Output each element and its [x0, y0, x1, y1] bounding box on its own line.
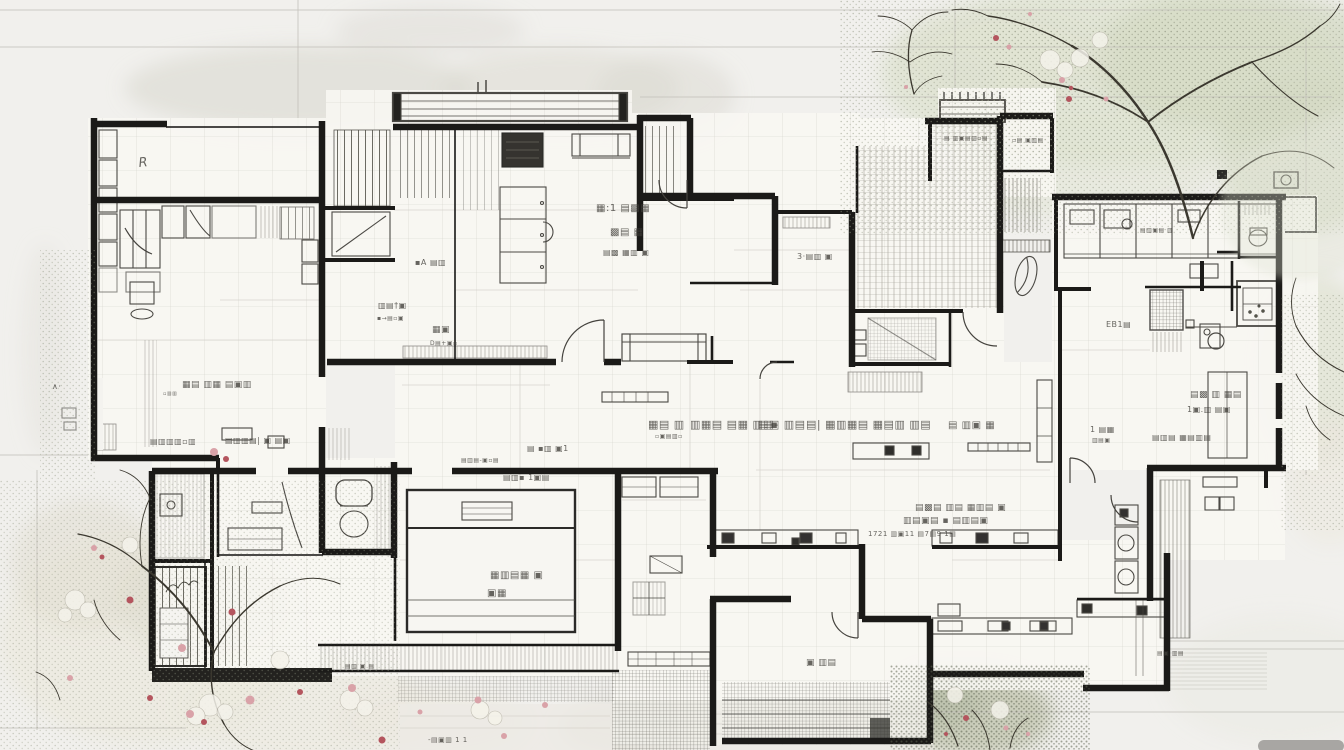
- annotation-text: ▫▤ ▣▥▤: [1012, 137, 1044, 144]
- annotation-text: ▤| ▦▥▦▤ ▦▤▥ ▥▤: [806, 418, 931, 431]
- annotation-text: ▤ ▪▥ ▣1: [527, 444, 569, 453]
- window-gap: [97, 378, 103, 450]
- annotation-text: ▤▥▤-▣▫▤: [461, 457, 499, 464]
- annotation-text: ▩▤ ▦: [610, 227, 644, 238]
- annotation-text: ▦▤ ▥: [648, 418, 685, 431]
- gray-blob: [1258, 740, 1344, 750]
- annotation-text: ▤▥▪ 1▣▤: [503, 473, 550, 482]
- annotation-text: ▤▥▤ ▦▤▥▤: [1152, 433, 1211, 442]
- annotation-text: -▤▣▥ 1 1: [428, 736, 468, 744]
- annotation-text: ▤▥▥▥▫▥: [150, 437, 196, 446]
- annotation-text: 1721 ▥▣11 ▤7▤9 1▤: [868, 530, 956, 538]
- porch-crosshatch: [612, 670, 710, 750]
- annotation-text: ▤▩▤ ▥▤ ▦▥▤ ▣: [915, 503, 1006, 513]
- annotation-text: ∧·: [52, 382, 61, 391]
- annotation-text: ▪A ▤▥: [415, 258, 446, 267]
- floor-plan-sketch: R▦▤ ▥▦ ▤▣▥▫▥▥▤▥▥▥▫▥▤▥▥▤| ▣ ▤▣▪A ▤▥▥▤†▣▪→…: [0, 0, 1344, 750]
- annotation-text: ▤▩ ▦▥ ▣: [603, 248, 649, 257]
- annotation-text: ▦:1 ▤▩▦: [596, 203, 650, 214]
- annotation-text: ▥▤▣: [1092, 437, 1111, 444]
- dining-table: [407, 490, 575, 632]
- annotation-text: ▥▤▣▤ ▪ ▤▥▤▣: [903, 516, 988, 526]
- annotation-text: ▤▩ ▥ ▦▤: [1190, 390, 1242, 400]
- annotation-text: ▤▥▣▤ ▥: [1140, 227, 1173, 234]
- annotation-text: ▤▥▥▤| ▣ ▤▣: [225, 436, 291, 445]
- annotation-text: ▫▣▤▥▫: [655, 433, 683, 440]
- annotation-text: R: [138, 155, 149, 171]
- annotation-text: 1 ▤▦: [1090, 425, 1115, 434]
- annotation-text: ▤▣ ▥▤: [758, 418, 806, 431]
- annotation-text: ▦▥▤▦ ▣: [490, 570, 543, 581]
- stair-hatch: [334, 130, 390, 206]
- annotation-text: 1▣.▥ ▤▣: [1187, 405, 1231, 414]
- annotation-text: ▣▦: [487, 588, 507, 599]
- annotation-text: ▦▣: [432, 325, 450, 335]
- annotation-text: EB1▤: [1106, 320, 1131, 329]
- annotation-text: ▤▥ ▣ ▤: [345, 663, 375, 670]
- shower-hatch: [1150, 290, 1183, 330]
- annotation-text: ▣ ▥▤: [806, 658, 836, 668]
- annotation-text: ▦▤ ▥▦ ▤▣▥: [182, 380, 252, 390]
- annotation-text: ▪→▤▫▣: [377, 315, 404, 322]
- annotation-text: ▥▤†▣: [378, 301, 407, 310]
- annotation-text: ▤ ▥▣ ▦: [948, 420, 995, 431]
- annotation-text: ▤▣ ▥▤: [1157, 650, 1184, 657]
- annotation-text: ▤ ▥▣▤▥▫▤: [944, 135, 988, 142]
- annotation-text: 3·▤▥ ▣: [797, 252, 833, 261]
- entry-steps-hatch: [722, 682, 890, 743]
- annotation-text: ▫▥▥: [163, 391, 177, 397]
- floor-plan-svg: R▦▤ ▥▦ ▤▣▥▫▥▥▤▥▥▥▫▥▤▥▥▤| ▣ ▤▣▪A ▤▥▥▤†▣▪→…: [0, 0, 1344, 750]
- annotation-text: D▤+▣▫: [430, 340, 458, 347]
